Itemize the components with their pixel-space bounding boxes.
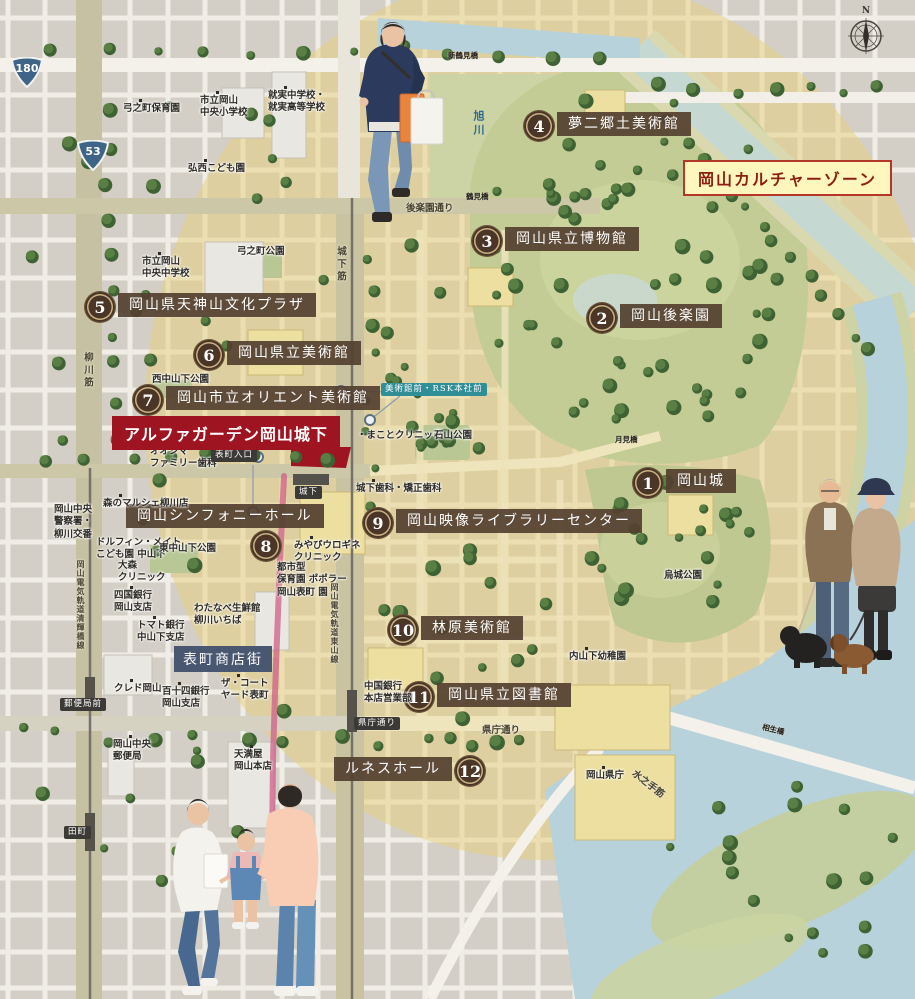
compass-rose: N bbox=[845, 8, 887, 58]
bridge-label: 月見橋 bbox=[615, 434, 638, 445]
facility-label: 市立岡山中央中学校 bbox=[142, 256, 190, 281]
compass-north-label: N bbox=[845, 6, 887, 16]
facility-label: わたなべ生鮮館柳川いちば bbox=[194, 603, 261, 628]
building-dot bbox=[250, 745, 253, 748]
building-dot bbox=[153, 616, 156, 619]
facility-label: 中国銀行本店営業部 bbox=[364, 681, 412, 706]
bridge-label: 鶴見橋 bbox=[466, 191, 489, 202]
facility-label: 岡山県庁 bbox=[586, 770, 624, 782]
label-layer: 1岡山城2岡山後楽園3岡山県立博物館4夢二郷土美術館5岡山県天神山文化プラザ6岡… bbox=[0, 0, 915, 999]
landmark-badge-6: 6 bbox=[194, 340, 224, 370]
illustrated-map: 1岡山城2岡山後楽園3岡山県立博物館4夢二郷土美術館5岡山県天神山文化プラザ6岡… bbox=[0, 0, 915, 999]
building-dot bbox=[204, 159, 207, 162]
river-label: 旭川 bbox=[470, 110, 486, 138]
landmark-label-3: 岡山県立博物館 bbox=[505, 227, 639, 251]
facility-label: 市立岡山中央小学校 bbox=[200, 95, 248, 120]
route-shield-180: 180 bbox=[10, 57, 44, 89]
building-dot bbox=[119, 494, 122, 497]
route-shield-53: 53 bbox=[76, 140, 110, 172]
landmark-label-1: 岡山城 bbox=[666, 469, 736, 493]
building-dot bbox=[585, 647, 588, 650]
landmark-label-5: 岡山県天神山文化プラザ bbox=[118, 293, 316, 317]
building-dot bbox=[602, 766, 605, 769]
building-dot bbox=[216, 91, 219, 94]
building-dot bbox=[130, 586, 133, 589]
road-label: 県庁通り bbox=[482, 722, 520, 736]
road-label: 柳川筋 bbox=[80, 352, 94, 390]
facility-label: 岡山中央郵便局 bbox=[113, 739, 151, 764]
building-dot bbox=[178, 682, 181, 685]
facility-label: 弘西こども園 bbox=[188, 163, 245, 175]
landmark-badge-5: 5 bbox=[85, 292, 115, 322]
tram-stop-badge: 県庁通り bbox=[354, 717, 400, 730]
building-dot bbox=[158, 252, 161, 255]
landmark-badge-8: 8 bbox=[251, 531, 281, 561]
facility-label: 就実中学校・就実高等学校 bbox=[268, 90, 325, 115]
landmark-label-4: 夢二郷土美術館 bbox=[557, 112, 691, 136]
bridge-label: 相生橋 bbox=[761, 721, 785, 737]
facility-label: 内山下幼稚園 bbox=[569, 651, 626, 663]
tram-stop-badge: 郵便局前 bbox=[60, 698, 106, 711]
landmark-badge-9: 9 bbox=[363, 508, 393, 538]
building-dot bbox=[237, 674, 240, 677]
bridge-label: 新鶴見橋 bbox=[448, 50, 478, 61]
landmark-label-2: 岡山後楽園 bbox=[620, 304, 722, 328]
culture-zone-label: 岡山カルチャーゾーン bbox=[683, 160, 892, 196]
building-dot bbox=[310, 536, 313, 539]
facility-label: 烏城公園 bbox=[664, 570, 702, 582]
facility-label: ・まことクリニック bbox=[357, 430, 443, 442]
building-dot bbox=[284, 86, 287, 89]
shopping-street-label: 表町商店街 bbox=[174, 646, 272, 672]
landmark-badge-7: 7 bbox=[133, 385, 163, 415]
road-label: 岡山電気軌道東山線 bbox=[330, 583, 341, 664]
landmark-label-7: 岡山市立オリエント美術館 bbox=[166, 386, 380, 410]
tram-stop-badge: 城下 bbox=[295, 486, 322, 499]
route-number: 180 bbox=[10, 62, 44, 75]
landmark-badge-2: 2 bbox=[587, 303, 617, 333]
landmark-badge-10: 10 bbox=[388, 615, 418, 645]
facility-label: 四国銀行岡山支店 bbox=[114, 590, 152, 615]
property-banner: アルファガーデン岡山城下 bbox=[112, 416, 340, 450]
road-label: 後楽園通り bbox=[406, 200, 454, 214]
facility-label: 百十四銀行岡山支店 bbox=[162, 686, 210, 711]
tram-stop-badge: 表町入口 bbox=[211, 449, 257, 462]
facility-label: 大森クリニック bbox=[118, 560, 166, 585]
facility-label: 弓之町保育園 bbox=[123, 103, 180, 115]
landmark-badge-12: 12 bbox=[455, 756, 485, 786]
tram-stop-badge: 美術館前・RSK本社前 bbox=[381, 383, 487, 396]
tram-stop-badge: 田町 bbox=[64, 826, 91, 839]
facility-label: 弓之町公園 bbox=[237, 246, 285, 258]
facility-label: ザ・コートヤード表町 bbox=[221, 678, 269, 703]
facility-label: 石山公園 bbox=[434, 430, 472, 442]
building-dot bbox=[372, 479, 375, 482]
facility-label: 天満屋岡山本店 bbox=[234, 749, 272, 774]
landmark-badge-1: 1 bbox=[633, 468, 663, 498]
facility-label: みやびウロギネクリニック bbox=[294, 540, 361, 565]
landmark-label-6: 岡山県立美術館 bbox=[227, 341, 361, 365]
building-dot bbox=[129, 735, 132, 738]
facility-label: 西中山下公園 bbox=[152, 374, 209, 386]
road-label: 岡山電気軌道清輝橋線 bbox=[76, 560, 87, 650]
facility-label: 城下歯科・矯正歯科 bbox=[356, 483, 442, 495]
landmark-label-12: ルネスホール bbox=[334, 757, 452, 781]
building-dot bbox=[139, 99, 142, 102]
landmark-label-11: 岡山県立図書館 bbox=[437, 683, 571, 707]
facility-label: クレド岡山 bbox=[114, 683, 162, 695]
route-number: 53 bbox=[76, 145, 110, 158]
landmark-label-10: 林原美術館 bbox=[421, 616, 523, 640]
facility-label: 森のマルシェ柳川店 bbox=[103, 498, 189, 510]
landmark-label-9: 岡山映像ライブラリーセンター bbox=[396, 509, 642, 533]
facility-label: 東中山下公園 bbox=[159, 543, 216, 555]
building-dot bbox=[130, 679, 133, 682]
facility-label: トマト銀行中山下支店 bbox=[137, 620, 185, 645]
facility-label: 岡山中央警察署・柳川交番 bbox=[54, 504, 92, 541]
road-label: 水之手筋 bbox=[630, 766, 669, 800]
road-label: 城下筋 bbox=[333, 246, 347, 284]
landmark-badge-3: 3 bbox=[472, 226, 502, 256]
landmark-badge-4: 4 bbox=[524, 111, 554, 141]
